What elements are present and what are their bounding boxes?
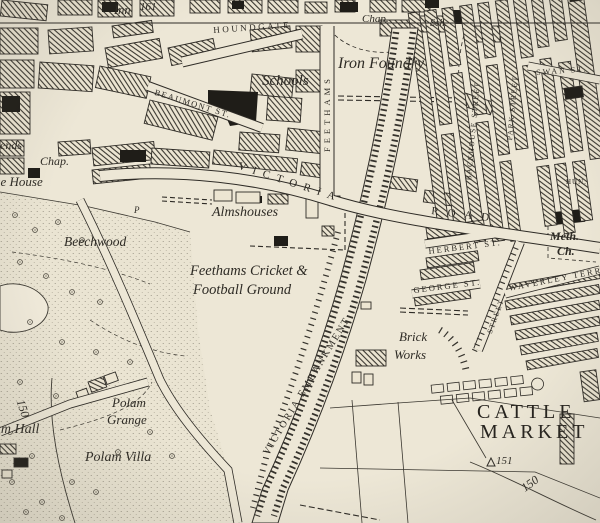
label-cricket-ground-line2: Football Ground xyxy=(193,283,291,298)
label-polam-hall-partial: lam Hall xyxy=(0,423,39,437)
label-trig-151: 151 xyxy=(496,456,513,467)
label-iron-foundry: Iron Foundry xyxy=(338,56,424,72)
label-hends-partial: hends xyxy=(0,139,22,151)
label-polam-villa: Polam Villa xyxy=(85,451,151,465)
label-cricket-ground-line1: Feethams Cricket & xyxy=(190,264,308,279)
trig-point-symbol xyxy=(487,458,495,466)
label-school-small: Sch. xyxy=(430,19,447,29)
map-canvas[interactable]: Inn 161 Chap. Sch. Schools Iron Foundry … xyxy=(0,0,600,523)
label-chapel-west: Chap. xyxy=(40,155,69,167)
label-brick-works-line1: Brick xyxy=(399,330,427,343)
label-beechwood: Beechwood xyxy=(64,235,126,249)
label-brick-works-line2: Works xyxy=(394,348,426,361)
label-methodist-line1: Meth. xyxy=(550,230,579,242)
label-cattle-market-line1: CATTLE xyxy=(477,402,575,422)
label-methodist-line2: Ch. xyxy=(557,245,575,257)
label-chapel-top: Chap. xyxy=(362,14,389,25)
label-pump: P xyxy=(134,206,140,215)
brickworks-pit-hachures xyxy=(440,330,466,370)
label-spot-height-161: 161 xyxy=(140,2,157,13)
label-grange-house-partial: ge House xyxy=(0,175,43,188)
label-polam-grange-line1: Polam xyxy=(112,396,146,409)
street-feethams: FEETHAMS xyxy=(323,75,332,152)
label-polam-grange-line2: Grange xyxy=(107,413,147,426)
label-inn: Inn xyxy=(114,4,131,17)
label-almshouses: Almshouses xyxy=(212,206,278,220)
label-schools: Schools xyxy=(262,74,309,89)
label-cattle-market-line2: MARKET xyxy=(480,422,588,442)
street-hun-partial: HUN. xyxy=(566,179,587,186)
